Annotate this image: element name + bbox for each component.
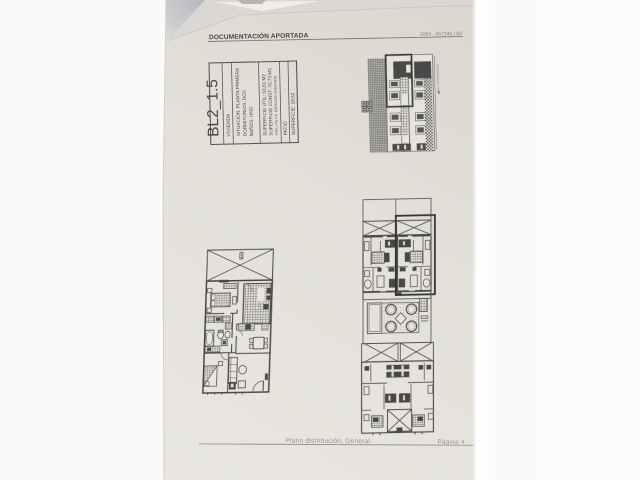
svg-text:BAÑOS: UNO: BAÑOS: UNO (247, 106, 254, 136)
svg-text:DORMITORIOS: DOS: DORMITORIOS: DOS (242, 90, 248, 136)
svg-text:SUPERFICIE: 18,52: SUPERFICIE: 18,52 (290, 92, 296, 135)
svg-text:Plano distribución. General.: Plano distribución. General. (285, 438, 372, 445)
svg-text:VIVIENDA: VIVIENDA (226, 113, 233, 137)
svg-text:Página 4: Página 4 (437, 439, 464, 446)
svg-text:BL2_1.5: BL2_1.5 (204, 79, 222, 137)
svg-text:PATIO: PATIO (283, 121, 289, 135)
